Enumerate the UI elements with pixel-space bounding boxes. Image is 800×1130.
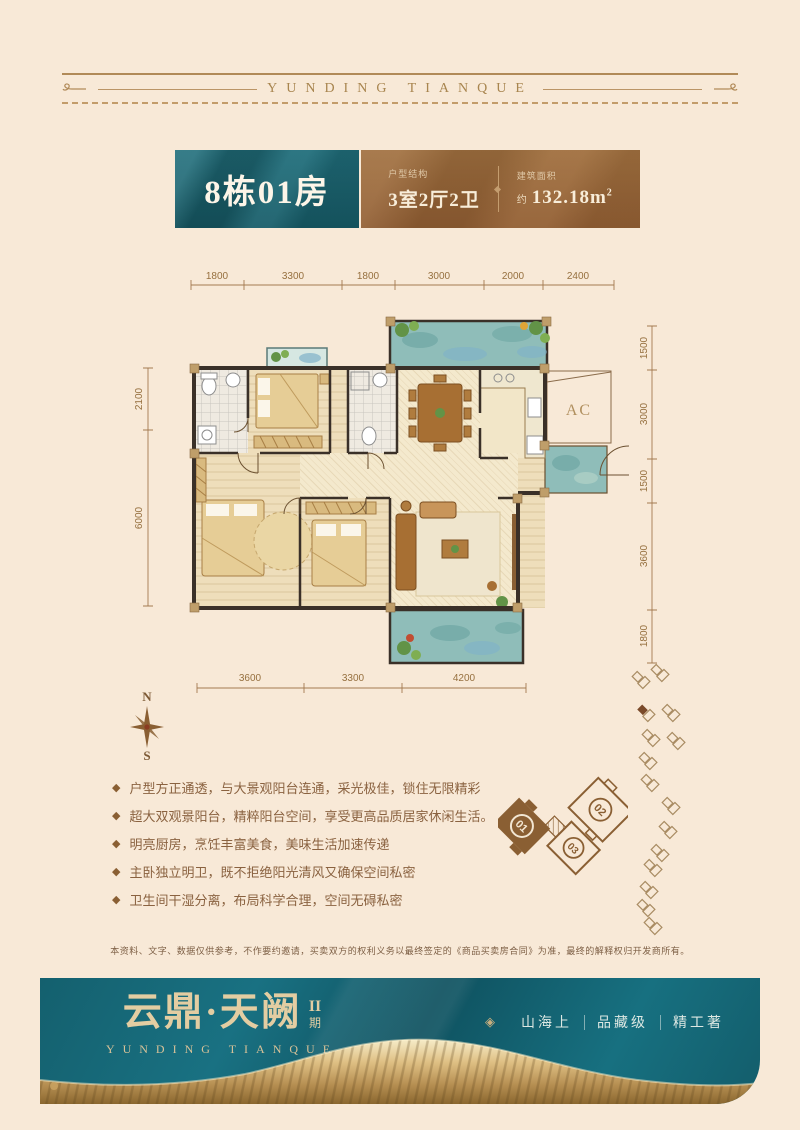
flourish-right-icon [712, 82, 738, 96]
svg-text:3000: 3000 [428, 271, 451, 282]
feature-item: ◆户型方正通透，与大景观阳台连通，采光极佳，锁住无限精彩 [112, 780, 632, 797]
svg-text:AC: AC [566, 402, 592, 419]
bedroom-2-furniture [254, 374, 329, 448]
area-sup: 2 [607, 188, 613, 199]
svg-text:3300: 3300 [282, 271, 305, 282]
masthead-dashed-rule [62, 102, 738, 104]
svg-text:1500: 1500 [639, 336, 650, 359]
svg-text:6000: 6000 [134, 506, 145, 529]
svg-text:3000: 3000 [639, 402, 650, 425]
footer-banner: 云鼎·天阙 II 期 YUNDING TIANQUE ◈ 山海上 品藏级 精工著 [40, 978, 760, 1104]
feature-text: 户型方正通透，与大景观阳台连通，采光极佳，锁住无限精彩 [129, 780, 480, 797]
svg-text:N: N [142, 690, 152, 704]
area-label: 建筑面积 [517, 169, 557, 182]
floor-plan: 1800 3300 1800 3000 2000 2400 2100 6000 … [120, 268, 680, 708]
diamond-bullet-icon: ◆ [112, 836, 120, 853]
layout-label: 户型结构 [388, 167, 428, 180]
svg-text:3600: 3600 [239, 673, 262, 684]
svg-text:4200: 4200 [453, 673, 476, 684]
diamond-bullet-icon: ◆ [112, 808, 120, 825]
masthead-rule-right [543, 89, 702, 90]
unit-title-box: 8栋01房 [175, 150, 359, 228]
svg-text:S: S [143, 748, 150, 762]
phase-roman: II [309, 999, 321, 1015]
area-prefix: 约 [517, 195, 528, 206]
brochure-page: YUNDING TIANQUE 8栋01房 户型结构 3室2厅2卫 建筑面积 约… [0, 0, 800, 1130]
dining-furniture [409, 375, 471, 451]
layout-info: 户型结构 3室2厅2卫 [370, 167, 498, 212]
unit-info-box: 户型结构 3室2厅2卫 建筑面积 约132.18m2 [361, 150, 640, 228]
masthead-rule-left [98, 89, 257, 90]
diamond-bullet-icon: ◆ [112, 780, 120, 797]
svg-text:1500: 1500 [639, 469, 650, 492]
feature-text: 卫生间干湿分离，布局科学合理，空间无碍私密 [129, 892, 402, 909]
svg-text:1800: 1800 [639, 624, 650, 647]
compass-icon: N S [128, 690, 166, 762]
svg-text:2100: 2100 [134, 387, 145, 410]
masthead: YUNDING TIANQUE [62, 80, 738, 98]
svg-text:1800: 1800 [357, 271, 380, 282]
layout-value: 3室2厅2卫 [388, 185, 480, 212]
area-number: 132.18m [532, 187, 607, 208]
area-value: 约132.18m2 [517, 187, 613, 209]
masthead-top-rule [62, 73, 738, 75]
feature-item: ◆卫生间干湿分离，布局科学合理，空间无碍私密 [112, 892, 632, 909]
balcony-top [390, 321, 550, 368]
masthead-title: YUNDING TIANQUE [267, 81, 533, 97]
ac-platform: AC [547, 371, 611, 443]
equipment-platform [545, 446, 607, 493]
info-divider [498, 166, 499, 212]
feature-text: 明亮厨房，烹饪丰富美食，美味生活加速传递 [129, 836, 389, 853]
diamond-bullet-icon: ◆ [112, 864, 120, 881]
feature-item: ◆明亮厨房，烹饪丰富美食，美味生活加速传递 [112, 836, 632, 853]
gold-wave-decoration [40, 1028, 760, 1104]
brand-phase: II 期 [309, 999, 321, 1029]
feature-item: ◆主卧独立明卫，既不拒绝阳光清风又确保空间私密 [112, 864, 632, 881]
feature-list: ◆户型方正通透，与大景观阳台连通，采光极佳，锁住无限精彩 ◆超大双观景阳台，精粹… [112, 780, 632, 920]
svg-text:2000: 2000 [502, 271, 525, 282]
feature-text: 超大双观景阳台，精粹阳台空间，享受更高品质居家休闲生活。 [129, 808, 493, 825]
balcony-small-top-left [267, 348, 327, 368]
unit-title: 8栋01房 [204, 165, 330, 213]
svg-text:2400: 2400 [567, 271, 590, 282]
feature-text: 主卧独立明卫，既不拒绝阳光清风又确保空间私密 [129, 864, 415, 881]
feature-item: ◆超大双观景阳台，精粹阳台空间，享受更高品质居家休闲生活。 [112, 808, 632, 825]
flourish-left-icon [62, 82, 88, 96]
svg-text:3600: 3600 [639, 544, 650, 567]
disclaimer-text: 本资料、文字、数据仅供参考，不作要约邀请，买卖双方的权利义务以最终签定的《商品买… [70, 944, 730, 957]
svg-text:3300: 3300 [342, 673, 365, 684]
diamond-bullet-icon: ◆ [112, 892, 120, 909]
svg-text:1800: 1800 [206, 271, 229, 282]
area-info: 建筑面积 约132.18m2 [499, 169, 631, 209]
balcony-bottom [390, 610, 523, 663]
